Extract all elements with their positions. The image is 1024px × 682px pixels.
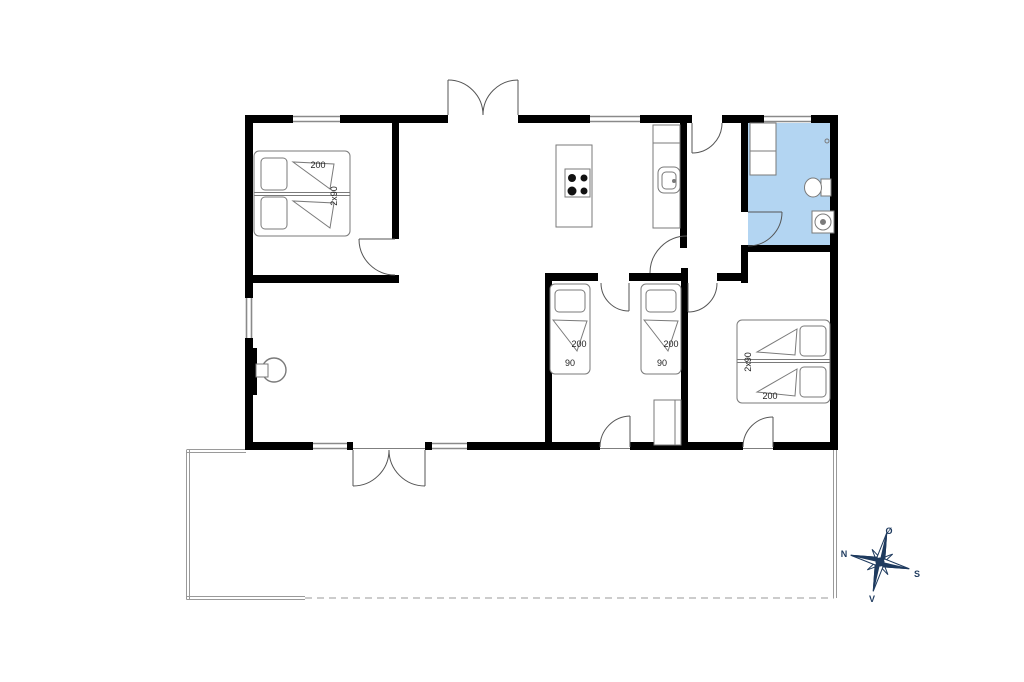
- bed1-length-label: 200: [310, 160, 325, 170]
- doors: [353, 80, 782, 486]
- wall-right: [830, 115, 838, 450]
- faucet-dot: [673, 180, 676, 183]
- patio-double-door: [353, 449, 425, 487]
- pillow: [646, 290, 676, 312]
- wall-bottom-1: [245, 442, 313, 450]
- washing-machine: [812, 211, 834, 233]
- entrance-double-door: [448, 80, 518, 115]
- utility-counter: [653, 125, 680, 228]
- bedroom3-terrace-door: [743, 417, 773, 449]
- twin-room-north-door: [601, 283, 629, 311]
- wall-bathroom-south: [741, 245, 830, 252]
- wall-top-3: [518, 115, 590, 123]
- bed1-width-label: 2x90: [329, 186, 339, 206]
- pillow: [800, 367, 826, 397]
- floor-plan-canvas: 200 2x90 200 90 200 90 2x90 200 Ø N S V: [0, 0, 1024, 682]
- wall-bottom-2: [347, 442, 353, 450]
- single1-width-label: 90: [565, 358, 575, 368]
- bathroom-cabinet: [750, 123, 776, 175]
- compass-dark-halves: [844, 526, 916, 598]
- bedroom1-door: [359, 239, 395, 275]
- chimney: [245, 348, 257, 395]
- window-kitchen-north: [590, 115, 640, 123]
- floor-plan-drawing: 200 2x90 200 90 200 90 2x90 200 Ø N S V: [0, 0, 1024, 682]
- wall-bedrooms-north-1: [545, 273, 598, 281]
- wall-bottom-6: [773, 442, 838, 450]
- pillow: [261, 197, 287, 229]
- pillow: [555, 290, 585, 312]
- bedroom3-north-door: [688, 283, 717, 312]
- terrace-outline: [187, 450, 837, 600]
- compass-north-label: N: [841, 549, 848, 559]
- bed3-length-label: 200: [762, 391, 777, 401]
- compass-south-label: S: [914, 569, 920, 579]
- wall-utility-east: [680, 123, 687, 248]
- wall-bedroom1-south: [245, 275, 399, 283]
- back-door: [692, 123, 722, 153]
- wall-top-4: [640, 115, 692, 123]
- wall-bedroom3-west: [681, 268, 688, 450]
- single1-length-label: 200: [571, 339, 586, 349]
- wall-top-5: [722, 115, 764, 123]
- pillow: [800, 326, 826, 356]
- single2-length-label: 200: [663, 339, 678, 349]
- twin-room-terrace-door: [600, 416, 630, 449]
- pillow: [261, 158, 287, 190]
- toilet-bowl: [805, 178, 822, 197]
- compass-west-label: V: [869, 594, 875, 604]
- wall-bottom-3: [425, 442, 432, 450]
- compass-east-label: Ø: [885, 526, 892, 536]
- wood-stove: [256, 358, 286, 382]
- bed3-width-label: 2x90: [743, 352, 753, 372]
- wall-bedroom1-east: [392, 115, 399, 239]
- wall-bedrooms-north-2: [629, 273, 688, 281]
- closet: [654, 400, 681, 445]
- window-bathroom-north: [764, 115, 811, 123]
- wall-bottom-4: [467, 442, 600, 450]
- wall-left-1: [245, 115, 253, 298]
- single2-width-label: 90: [657, 358, 667, 368]
- window-living-south-2: [432, 442, 467, 450]
- window-living-west: [245, 298, 253, 338]
- window-living-south-1: [313, 442, 347, 450]
- wall-bathroom-west-upper: [741, 123, 748, 212]
- wall-bedrooms-north-3: [717, 273, 748, 281]
- toilet: [805, 178, 832, 197]
- kitchen-island: [556, 145, 592, 227]
- compass-rose: Ø N S V: [841, 526, 920, 604]
- toilet-tank: [821, 179, 831, 196]
- window-bedroom1-north: [293, 115, 340, 123]
